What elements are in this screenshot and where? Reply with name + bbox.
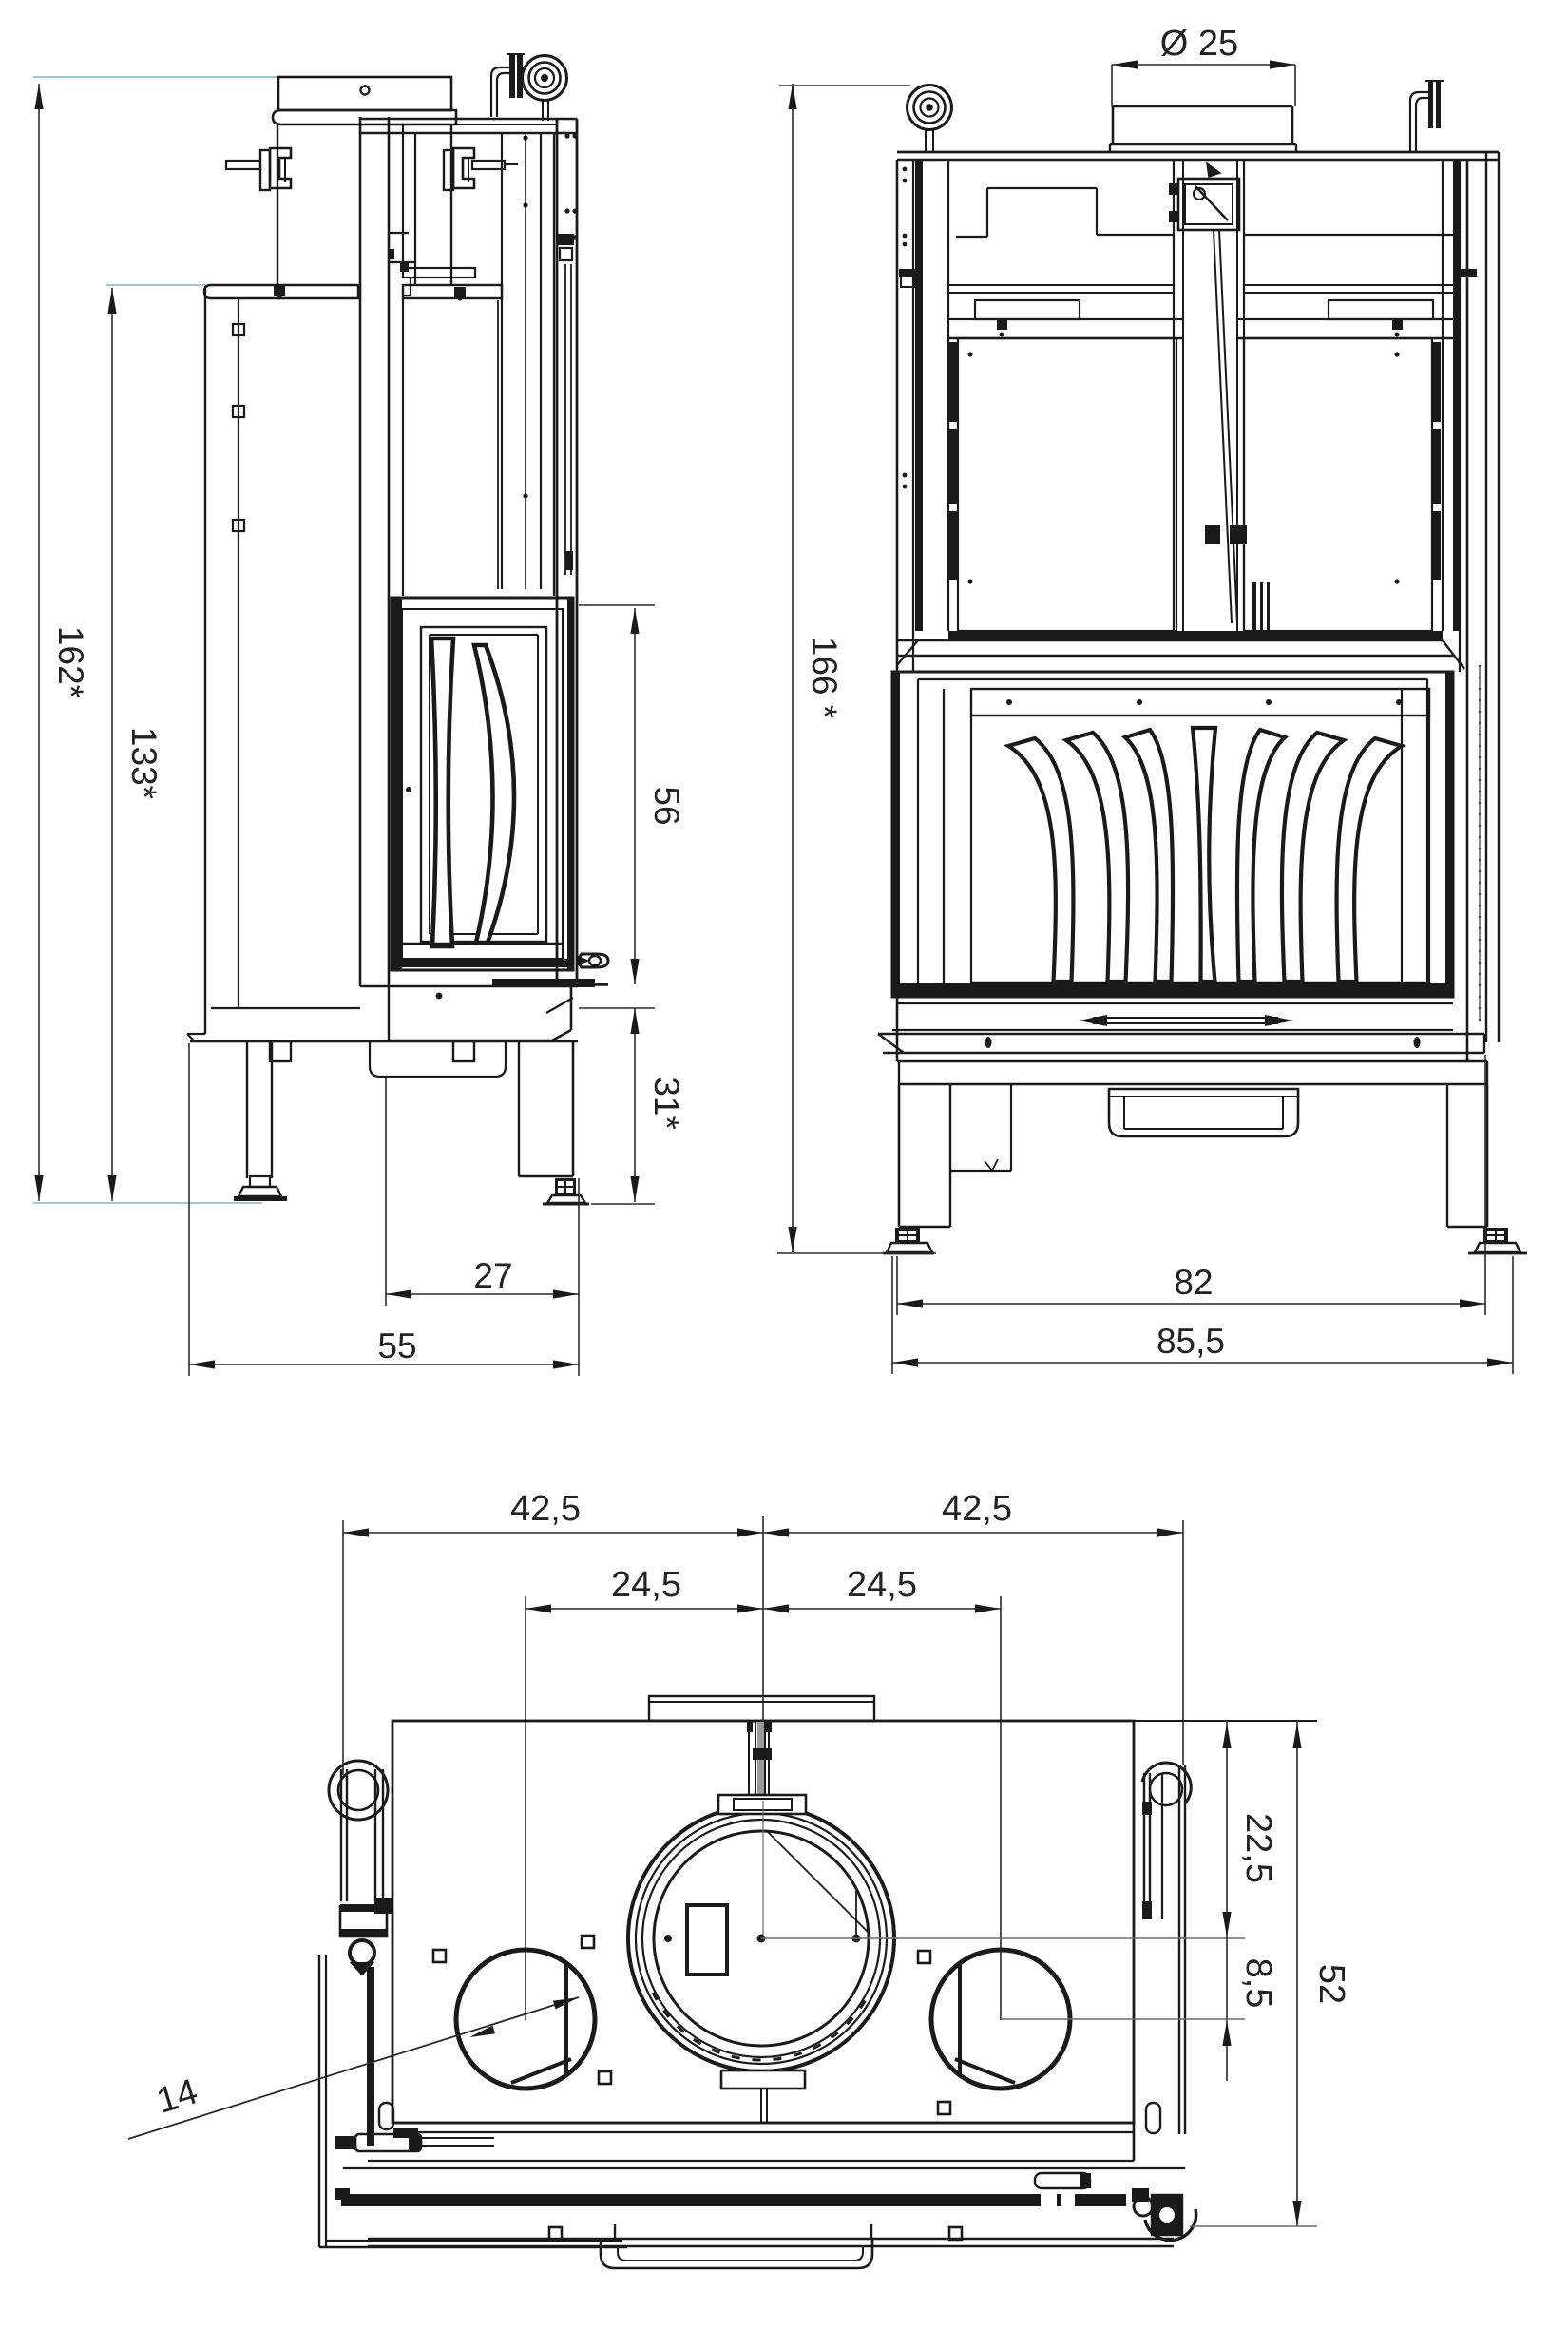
svg-text:133*: 133*	[124, 727, 163, 799]
svg-text:52: 52	[1311, 1964, 1351, 2004]
svg-text:162*: 162*	[51, 626, 90, 698]
svg-text:8,5: 8,5	[1238, 1958, 1278, 2009]
svg-text:42,5: 42,5	[510, 1489, 581, 1529]
svg-text:22,5: 22,5	[1238, 1813, 1278, 1883]
svg-text:Ø 25: Ø 25	[1160, 24, 1238, 64]
svg-text:31*: 31*	[647, 1077, 686, 1130]
svg-text:85,5: 85,5	[1157, 1322, 1225, 1361]
svg-text:55: 55	[377, 1326, 416, 1365]
svg-text:27: 27	[473, 1256, 512, 1295]
svg-text:24,5: 24,5	[611, 1565, 681, 1605]
svg-text:24,5: 24,5	[847, 1565, 917, 1605]
svg-text:166 *: 166 *	[805, 637, 844, 718]
svg-text:42,5: 42,5	[942, 1489, 1012, 1529]
svg-text:82: 82	[1174, 1263, 1213, 1302]
svg-text:56: 56	[647, 786, 686, 825]
